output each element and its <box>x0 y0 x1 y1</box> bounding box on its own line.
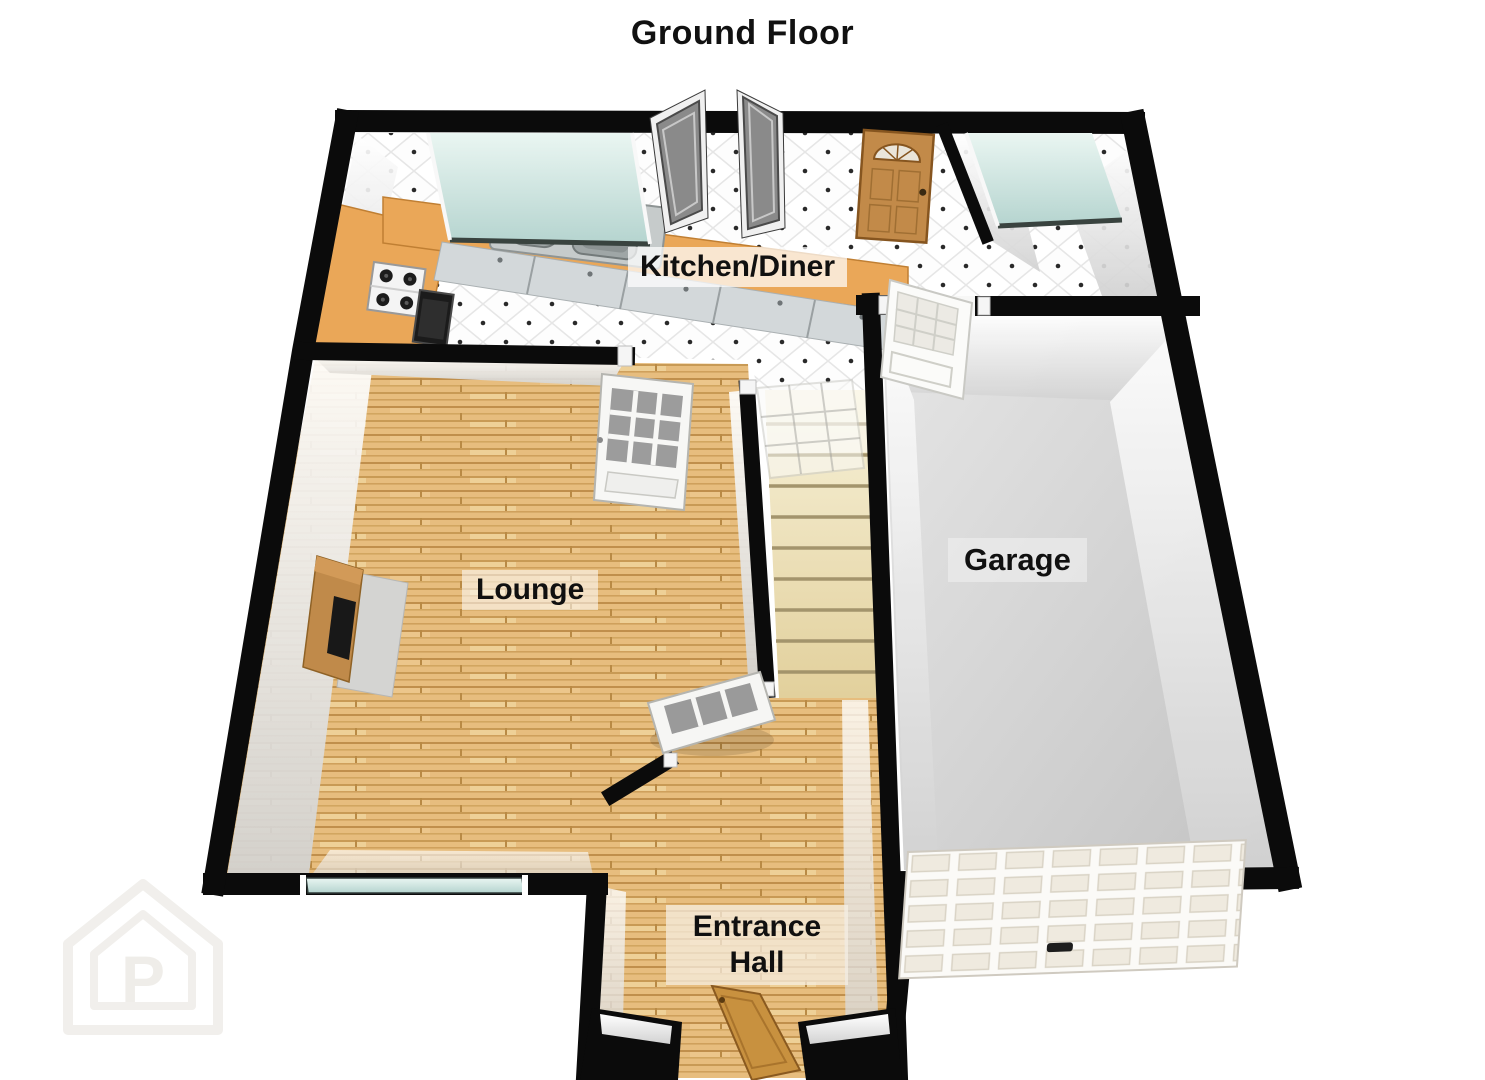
floorplan-canvas: Ground Floor <box>0 0 1485 1080</box>
wall-kitchen-lounge <box>303 351 626 356</box>
room-label-lounge: Lounge <box>462 570 598 610</box>
kitchen-window <box>428 133 650 244</box>
watermark-logo: P <box>58 878 228 1038</box>
garage-door <box>899 840 1246 978</box>
room-label-kitchen-diner: Kitchen/Diner <box>628 247 847 287</box>
lounge-window <box>300 875 528 895</box>
entrance-hall-line1: Entrance <box>693 910 821 943</box>
watermark-letter: P <box>121 942 165 1016</box>
front-door <box>856 130 933 243</box>
kitchen-lounge-door <box>594 374 693 510</box>
room-label-entrance-hall: Entrance Hall <box>666 905 848 985</box>
entrance-hall-line2: Hall <box>729 946 784 979</box>
oven <box>413 290 454 346</box>
stairs-top-door <box>757 380 864 478</box>
room-label-garage: Garage <box>948 538 1087 582</box>
patio-double-door-right <box>737 90 785 238</box>
